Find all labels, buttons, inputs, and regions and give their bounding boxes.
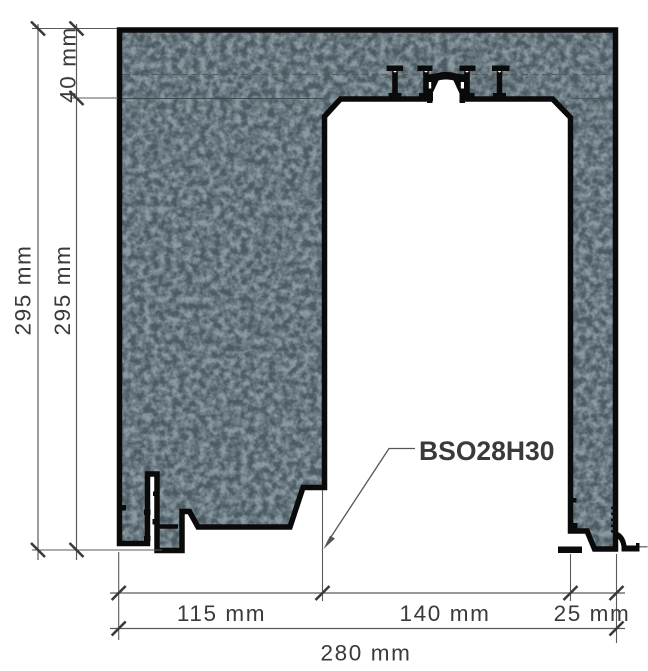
svg-text:40 mm: 40 mm — [56, 26, 81, 103]
svg-text:BSO28H30: BSO28H30 — [419, 436, 555, 466]
svg-text:295 mm: 295 mm — [50, 245, 75, 336]
svg-text:280 mm: 280 mm — [321, 641, 412, 666]
svg-text:115 mm: 115 mm — [177, 601, 266, 626]
svg-text:140 mm: 140 mm — [400, 601, 491, 626]
svg-text:25 mm: 25 mm — [554, 601, 631, 626]
svg-text:295 mm: 295 mm — [11, 245, 36, 336]
